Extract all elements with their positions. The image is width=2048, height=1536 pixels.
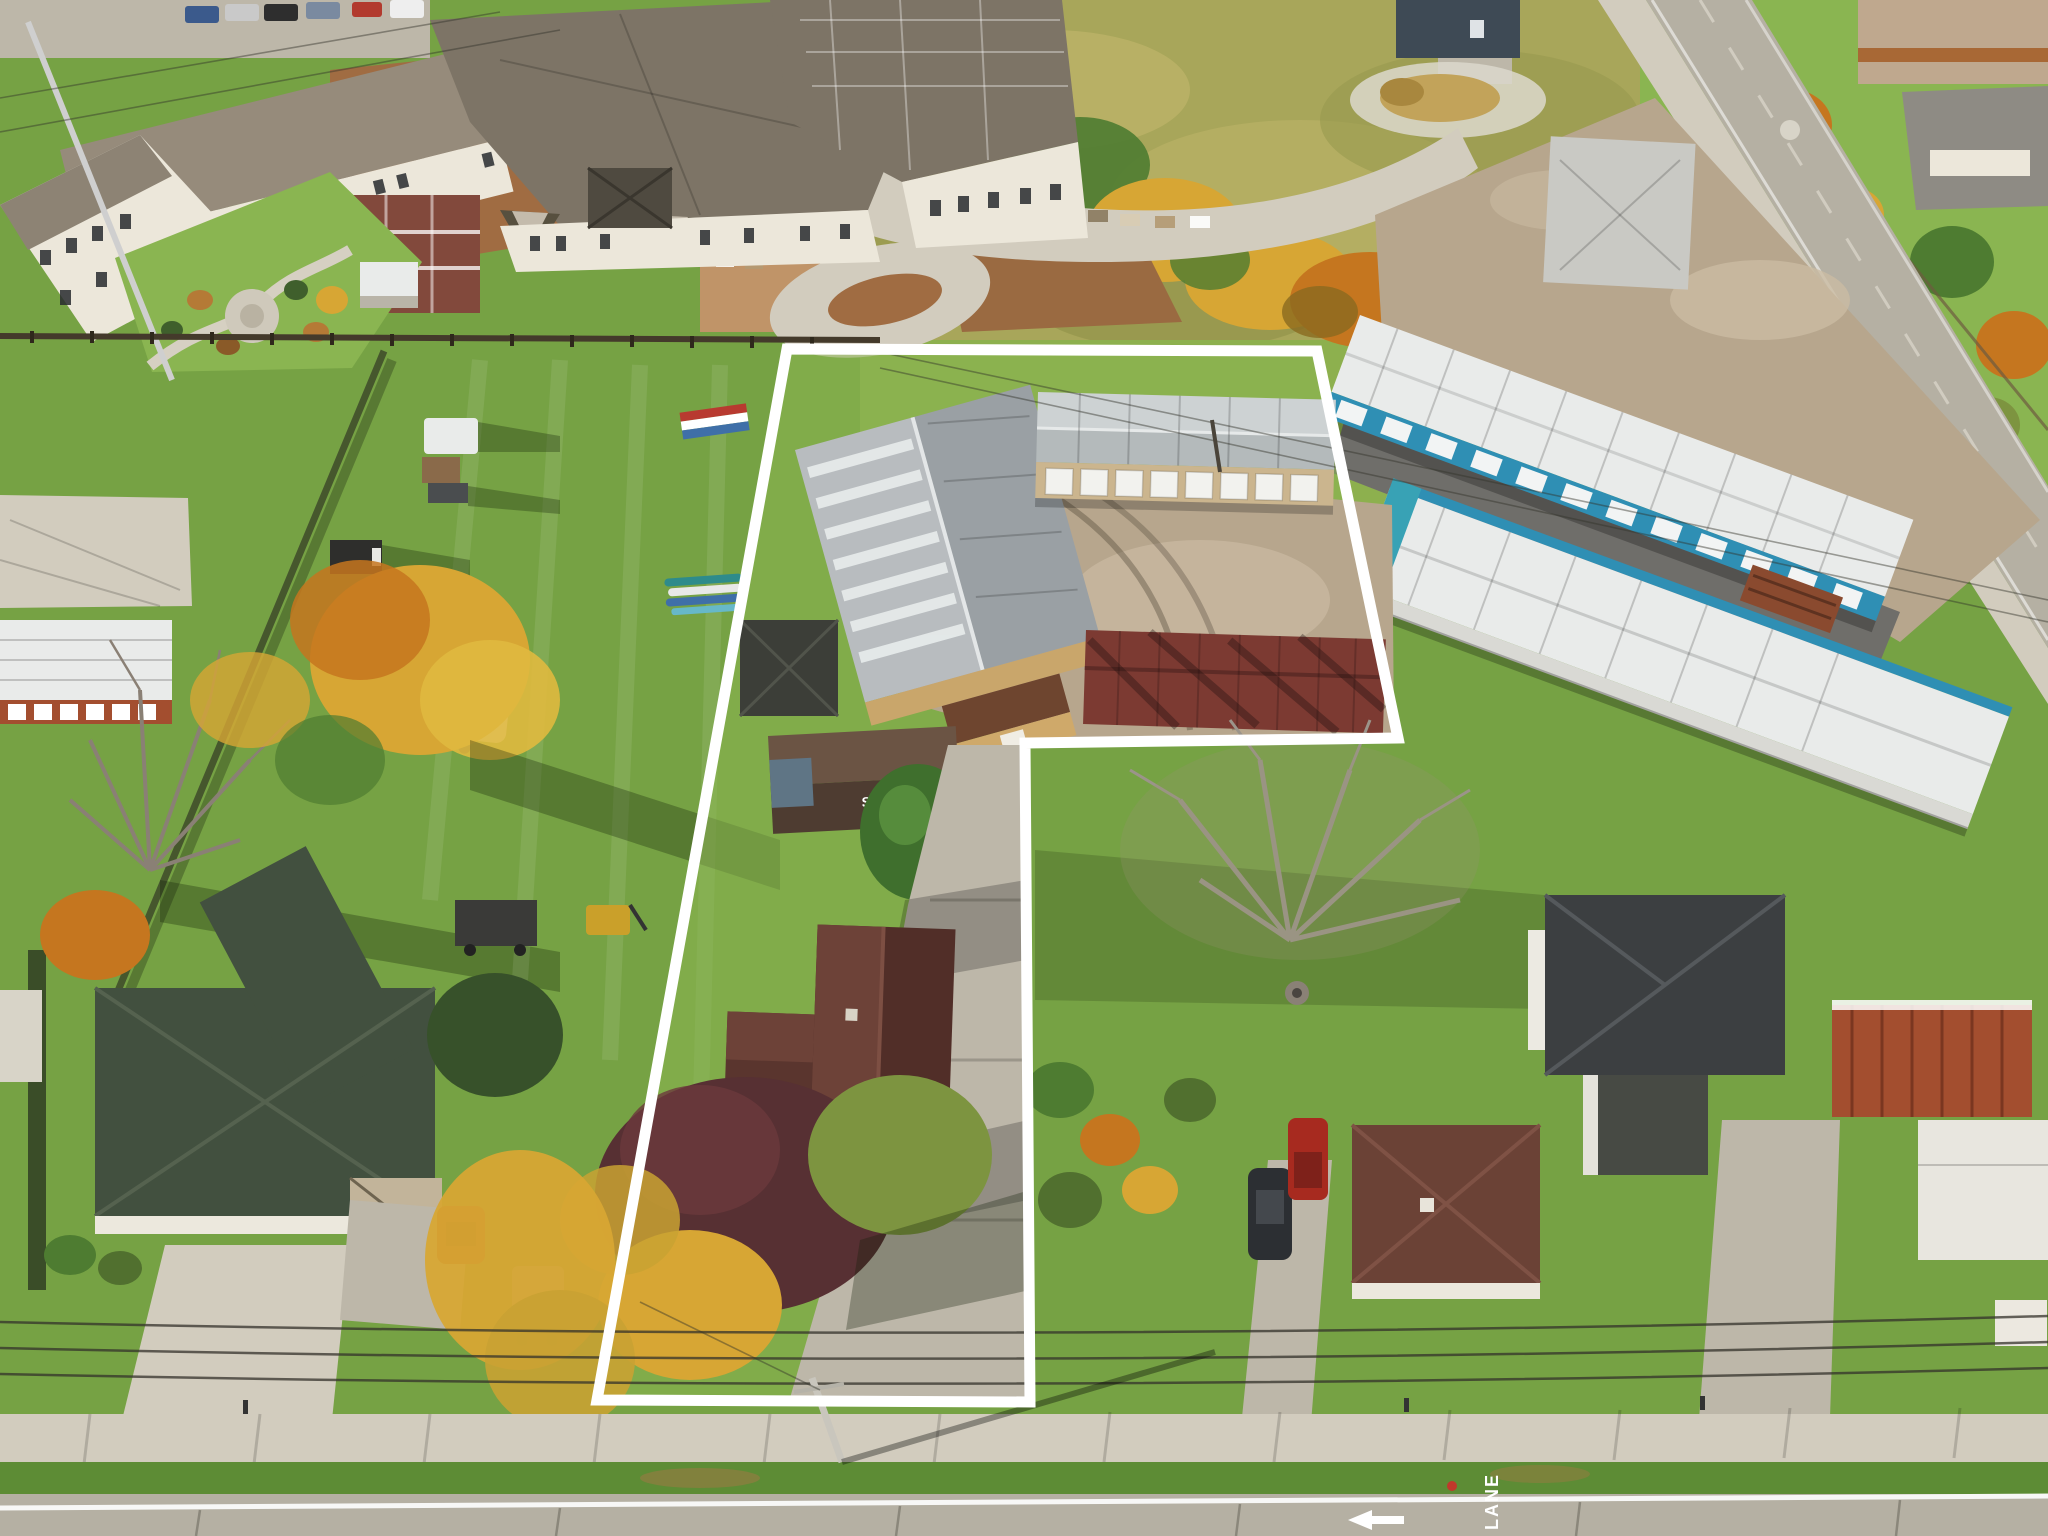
edge-building [0, 990, 42, 1082]
aerial-photo: STORAGE 388 [0, 0, 2048, 1536]
house-gable-wing [1598, 1075, 1708, 1175]
white-hip-barn [1543, 136, 1695, 289]
dark-suv [1248, 1168, 1292, 1260]
sign-post [1404, 1398, 1409, 1412]
rusty-roof-barn [1832, 1000, 2032, 1117]
enclosed-trailer [424, 418, 478, 454]
street-sidewalk [0, 1414, 2048, 1464]
sign-post-2 [1700, 1396, 1705, 1410]
red-pickup [1288, 1118, 1328, 1200]
rusty-container [422, 457, 460, 483]
dark-container [428, 483, 468, 503]
aerial-photo-canvas: STORAGE 388 [0, 0, 2048, 1536]
white-flat-building [1918, 1120, 2048, 1260]
mailbox-post [243, 1400, 248, 1414]
hydrant [1447, 1481, 1457, 1491]
orange-shrub [40, 890, 150, 980]
beige-house-roof [1858, 0, 2048, 84]
bike-lane-label: LANE [1482, 1473, 1502, 1530]
garage-row-building [1035, 392, 1336, 515]
white-shed [360, 262, 418, 308]
concrete-slab [0, 495, 192, 608]
street-verge [0, 1462, 2048, 1496]
brown-hip-house [1352, 1125, 1540, 1299]
dark-green-tree [427, 973, 563, 1097]
white-garage-corner [1995, 1300, 2047, 1346]
white-storage-barn-west [0, 620, 172, 724]
hip-roof-house [740, 620, 838, 716]
gray-roof-house [1902, 86, 2048, 210]
bottom-street: LANE [0, 1396, 2048, 1536]
chimney [845, 1009, 857, 1021]
roof-panel [769, 758, 813, 808]
maroon-pole-barn [1083, 630, 1386, 733]
